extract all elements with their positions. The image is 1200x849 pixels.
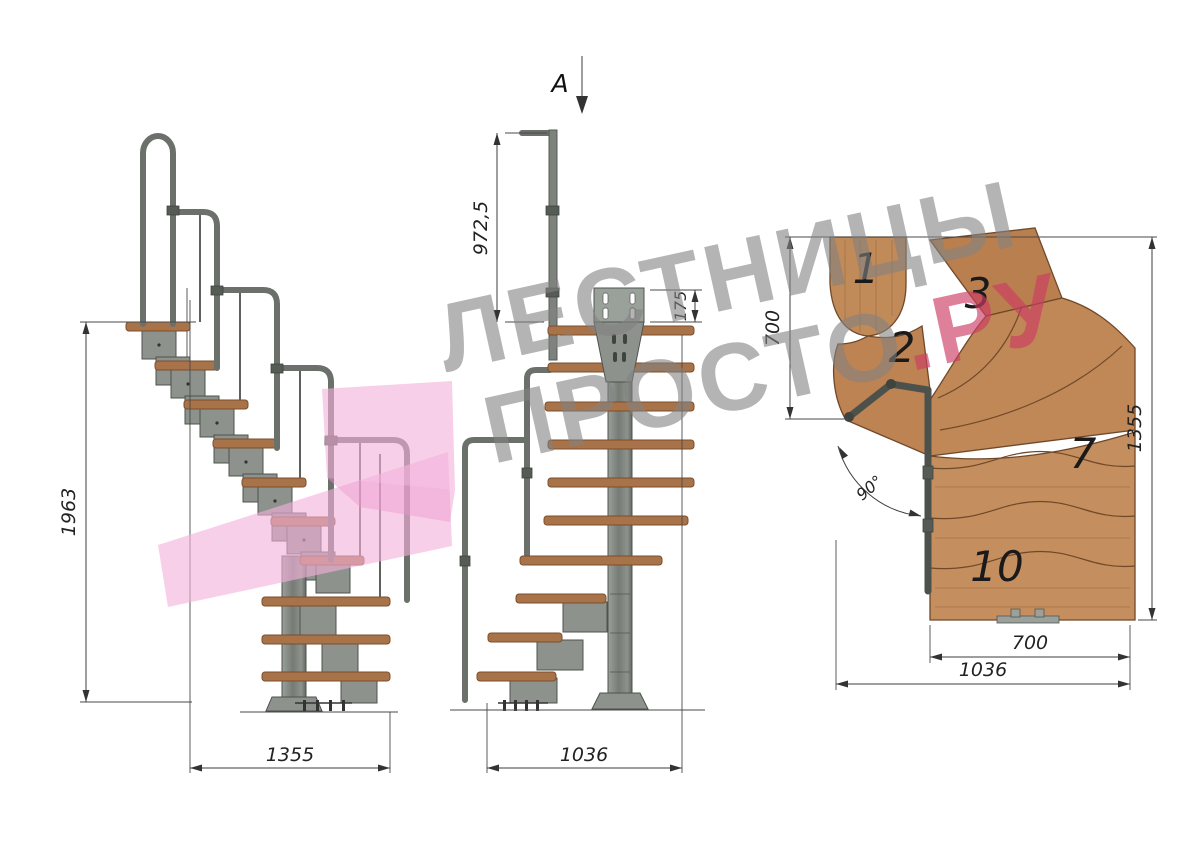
dim-plan-tread-length: 700	[1012, 632, 1048, 654]
tread-number-1: 1	[853, 244, 880, 293]
front-elevation-view: A	[450, 56, 705, 773]
dim-front-width: 1036	[560, 744, 608, 766]
tread-number-10: 10	[970, 542, 1023, 591]
tread-number-3: 3	[965, 269, 992, 318]
drawing-svg: 1963 1355 A	[0, 0, 1200, 849]
dim-side-width: 1355	[266, 744, 314, 766]
plan-view: 1 2 3 7 10 700 1355 700	[762, 228, 1157, 690]
dim-handrail-height: 972,5	[470, 201, 492, 255]
dim-plate-height: 175	[671, 291, 690, 322]
technical-drawing: 1963 1355 A	[0, 0, 1200, 849]
dim-plan-width: 1036	[959, 659, 1007, 681]
section-label: A	[549, 69, 568, 98]
tread-number-2: 2	[889, 323, 916, 372]
dim-plan-top-run: 700	[762, 310, 784, 346]
section-arrow: A	[549, 56, 588, 114]
dim-side-height: 1963	[58, 488, 80, 536]
handrail-hoop	[143, 136, 173, 324]
front-step-modules	[498, 602, 607, 711]
tread-number-7: 7	[1070, 429, 1097, 478]
dim-plan-height: 1355	[1124, 404, 1146, 452]
dim-plan-angle: 90°	[852, 471, 886, 504]
